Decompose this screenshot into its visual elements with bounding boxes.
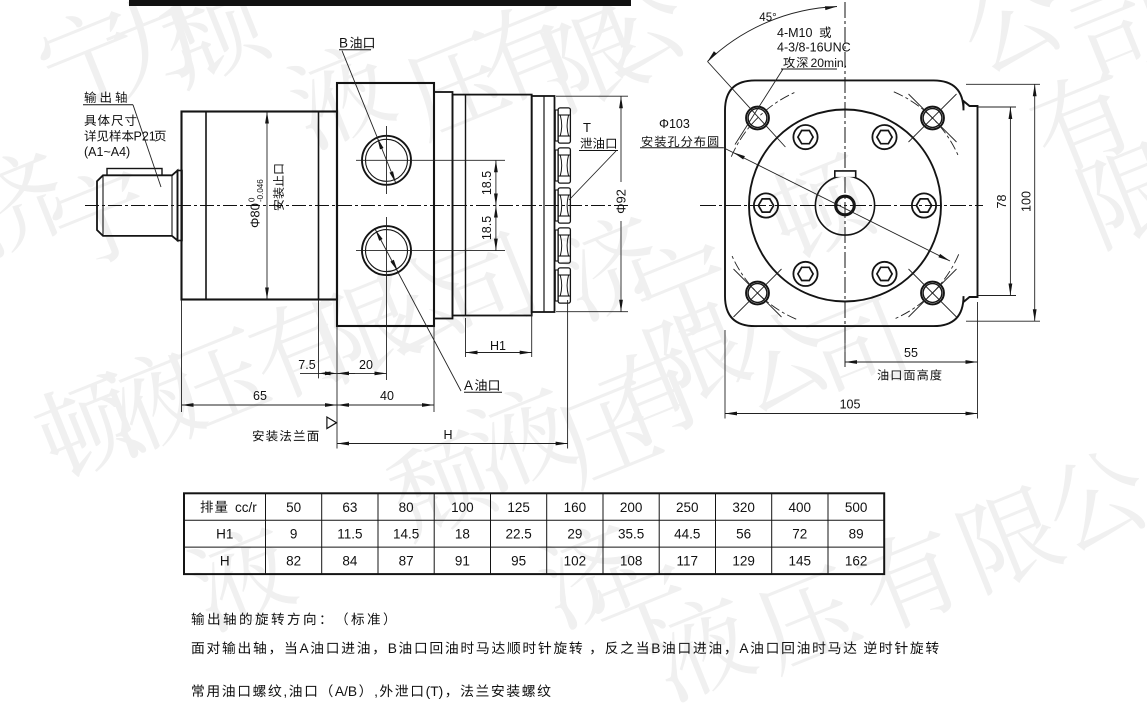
svg-text:-0.046: -0.046 [256,179,265,202]
svg-text:,: , [374,684,378,699]
svg-text:9: 9 [290,527,298,542]
svg-text:320: 320 [732,500,755,515]
svg-text:H1: H1 [490,339,506,353]
svg-text:65: 65 [253,389,267,403]
svg-text:11.5: 11.5 [337,527,362,542]
svg-text:82: 82 [286,554,301,569]
svg-text:250: 250 [676,500,699,515]
svg-text:T: T [583,120,591,135]
svg-text:A: A [300,641,310,656]
svg-text:84: 84 [342,554,358,569]
svg-text:H: H [443,428,452,442]
svg-text:A/B: A/B [335,684,357,699]
svg-text:H1: H1 [216,527,233,542]
svg-text:117: 117 [677,554,699,569]
svg-text:80: 80 [399,500,414,515]
svg-text:125: 125 [507,500,530,515]
svg-text:72: 72 [792,527,807,542]
svg-text:H: H [220,554,230,569]
svg-text:400: 400 [789,500,812,515]
svg-text:40: 40 [380,389,394,403]
svg-text:18.5: 18.5 [480,171,494,195]
svg-text:20min.: 20min. [811,56,848,70]
svg-text:7.5: 7.5 [298,358,315,372]
svg-text:50: 50 [286,500,301,515]
svg-text:129: 129 [732,554,755,569]
svg-text:44.5: 44.5 [674,527,700,542]
svg-text:18: 18 [455,527,470,542]
svg-text:87: 87 [399,554,414,569]
svg-text:Φ80: Φ80 [248,203,263,228]
svg-text:35.5: 35.5 [618,527,644,542]
svg-text:B: B [339,36,348,51]
svg-text:(T): (T) [426,684,444,699]
svg-text:160: 160 [564,500,587,515]
svg-text:55: 55 [904,346,918,360]
svg-text:14.5: 14.5 [393,527,419,542]
svg-text:(A1~A4): (A1~A4) [84,145,130,159]
svg-text:95: 95 [511,554,526,569]
svg-text:Φ103: Φ103 [659,117,690,131]
svg-text:18.5: 18.5 [480,216,494,240]
svg-text:45°: 45° [759,12,776,24]
svg-text:100: 100 [1020,191,1034,212]
svg-text:89: 89 [849,527,864,542]
svg-text:4-M10: 4-M10 [777,26,812,40]
svg-text:A: A [464,378,473,393]
svg-text:A: A [739,641,749,656]
svg-text:100: 100 [451,500,474,515]
svg-text:4-3/8-16UNC: 4-3/8-16UNC [777,41,851,55]
svg-text:22.5: 22.5 [505,527,531,542]
svg-text:20: 20 [359,358,373,372]
svg-text:200: 200 [620,500,643,515]
svg-text:63: 63 [342,500,357,515]
svg-text:91: 91 [455,554,470,569]
svg-text:102: 102 [564,554,587,569]
svg-text:B: B [388,641,397,656]
svg-text:105: 105 [840,398,861,412]
svg-text:145: 145 [789,554,812,569]
svg-text:108: 108 [620,554,643,569]
svg-text:500: 500 [845,500,868,515]
svg-text:P21: P21 [134,130,156,144]
svg-text:B: B [651,641,660,656]
svg-text:,: , [283,684,287,699]
svg-text:162: 162 [845,554,868,569]
svg-text:78: 78 [995,195,1009,209]
svg-text:29: 29 [567,527,582,542]
svg-text:cc/r: cc/r [235,500,257,515]
svg-text:Φ92: Φ92 [614,189,629,214]
svg-text:56: 56 [736,527,751,542]
